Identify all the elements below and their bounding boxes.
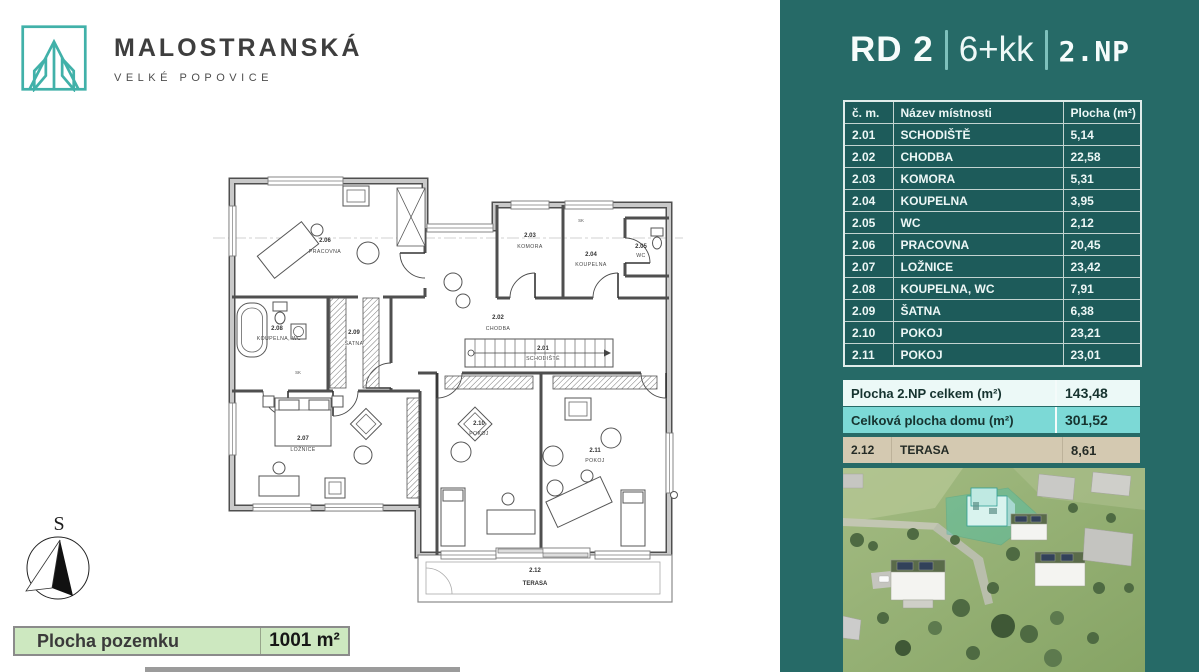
room-label: 2.06 — [319, 238, 331, 244]
table-row: 2.09ŠATNA6,38 — [844, 300, 1141, 322]
table-row: 2.08KOUPELNA, WC7,91 — [844, 278, 1141, 300]
table-row: 2.04KOUPELNA3,95 — [844, 190, 1141, 212]
terrace-row: 2.12 TERASA 8,61 — [843, 437, 1140, 463]
col-header-number: č. m. — [844, 101, 893, 124]
unit-disposition: 6+kk — [959, 30, 1034, 70]
closet-label: SK — [295, 370, 301, 375]
svg-text:TERASA: TERASA — [523, 581, 548, 587]
brand-logo-icon — [20, 24, 88, 92]
unit-house: RD 2 — [850, 30, 934, 70]
table-row: 2.01SCHODIŠTĚ5,14 — [844, 124, 1141, 146]
table-row: 2.02CHODBA22,58 — [844, 146, 1141, 168]
room-label: 2.12 — [529, 568, 541, 574]
datasheet-page: MALOSTRANSKÁ VELKÉ POPOVICE — [0, 0, 1199, 672]
svg-text:SCHODIŠTĚ: SCHODIŠTĚ — [526, 354, 560, 362]
brand-text: MALOSTRANSKÁ VELKÉ POPOVICE — [114, 24, 363, 84]
svg-text:KOUPELNA, WC: KOUPELNA, WC — [257, 336, 302, 342]
info-panel: RD 2 6+kk 2.NP č. m. Název místnosti Plo… — [780, 0, 1199, 672]
room-label: 2.05 — [635, 244, 647, 250]
svg-text:POKOJ: POKOJ — [469, 431, 489, 437]
room-label: 2.09 — [348, 330, 360, 336]
unit-floor: 2.NP — [1059, 32, 1130, 68]
room-label: 2.07 — [297, 436, 309, 442]
summary-house-total: Celková plocha domu (m²) 301,52 — [843, 407, 1140, 433]
summary-floor-total: Plocha 2.NP celkem (m²) 143,48 — [843, 380, 1140, 406]
terrace-outline — [418, 555, 672, 602]
brand-header: MALOSTRANSKÁ VELKÉ POPOVICE — [20, 24, 363, 92]
aerial-render — [843, 468, 1145, 672]
table-header-row: č. m. Název místnosti Plocha (m²) — [844, 101, 1141, 124]
plot-area-bar: Plocha pozemku 1001 m² — [13, 626, 350, 656]
closet-label: SK — [578, 218, 584, 223]
plot-area-value: 1001 m² — [261, 628, 348, 654]
unit-title: RD 2 6+kk 2.NP — [835, 24, 1145, 76]
brand-name: MALOSTRANSKÁ — [114, 34, 363, 63]
col-header-name: Název místnosti — [893, 101, 1063, 124]
compass: S — [18, 506, 102, 616]
table-row: 2.03KOMORA5,31 — [844, 168, 1141, 190]
svg-text:POKOJ: POKOJ — [585, 458, 605, 464]
title-separator — [1045, 30, 1048, 70]
brand-location: VELKÉ POPOVICE — [114, 72, 363, 84]
svg-text:PRACOVNA: PRACOVNA — [309, 249, 341, 255]
page-edge-strip — [145, 667, 460, 672]
table-row: 2.05WC2,12 — [844, 212, 1141, 234]
room-label: 2.10 — [473, 421, 485, 427]
table-row: 2.10POKOJ23,21 — [844, 322, 1141, 344]
title-separator — [945, 30, 948, 70]
table-row: 2.07LOŽNICE23,42 — [844, 256, 1141, 278]
rooms-table: č. m. Název místnosti Plocha (m²) 2.01SC… — [843, 100, 1142, 367]
room-label: 2.01 — [537, 346, 549, 352]
room-label: 2.02 — [492, 315, 504, 321]
north-label: S — [53, 513, 64, 535]
summary-rows: Plocha 2.NP celkem (m²) 143,48 Celková p… — [843, 380, 1140, 434]
staircase — [465, 339, 613, 367]
room-label: 2.08 — [271, 326, 283, 332]
room-label: 2.03 — [524, 233, 536, 239]
plot-area-label: Plocha pozemku — [15, 628, 261, 654]
svg-text:ŠATNA: ŠATNA — [345, 340, 364, 347]
room-label: 2.11 — [589, 448, 601, 454]
table-row: 2.11POKOJ23,01 — [844, 344, 1141, 367]
svg-text:CHODBA: CHODBA — [486, 326, 511, 332]
col-header-area: Plocha (m²) — [1063, 101, 1141, 124]
room-label: 2.04 — [585, 252, 597, 258]
svg-text:KOUPELNA: KOUPELNA — [575, 262, 607, 268]
floorplan-drawing: 2.06 PRACOVNA 2.03 KOMORA 2.04 KOUPELNA … — [213, 158, 688, 628]
svg-text:WC: WC — [636, 253, 645, 259]
table-row: 2.06PRACOVNA20,45 — [844, 234, 1141, 256]
svg-text:KOMORA: KOMORA — [517, 244, 543, 250]
svg-text:LOŽNICE: LOŽNICE — [290, 445, 315, 453]
